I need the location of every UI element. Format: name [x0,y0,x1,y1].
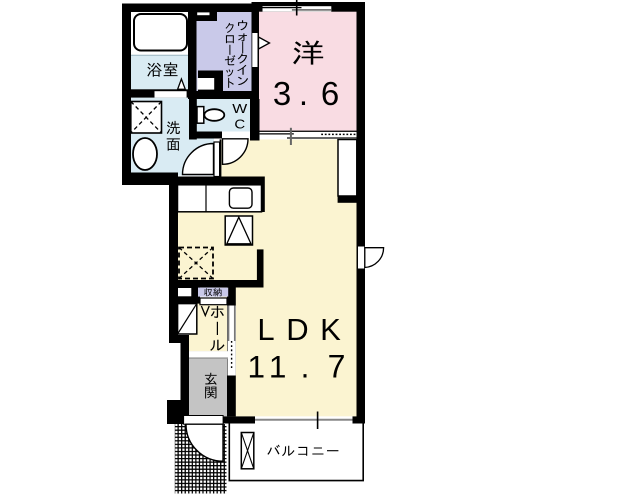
svg-text:7: 7 [328,349,346,385]
svg-text:.: . [299,75,308,112]
svg-text:1: 1 [248,349,266,385]
svg-text:K: K [320,312,341,347]
svg-text:D: D [286,312,308,347]
svg-text:6: 6 [321,75,339,112]
svg-text:W: W [232,102,247,116]
svg-text:C: C [234,116,245,131]
svg-text:.: . [301,349,310,385]
svg-text:3: 3 [273,75,291,112]
svg-text:L: L [257,312,274,347]
svg-text:1: 1 [269,349,287,385]
